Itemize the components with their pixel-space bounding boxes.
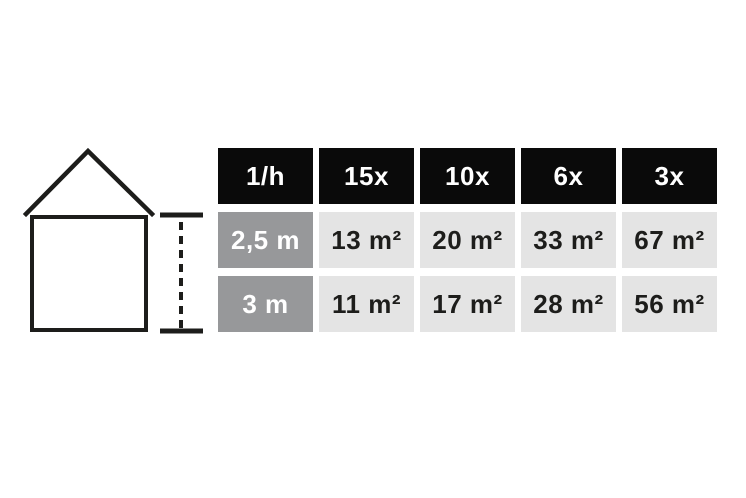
header-cell-3: 6x [521, 148, 616, 204]
header-cell-4: 3x [622, 148, 717, 204]
value-cell-r0-c2: 33 m² [521, 212, 616, 268]
house-icon [26, 151, 152, 330]
value-cell-r1-c2: 28 m² [521, 276, 616, 332]
value-cell-r1-c0: 11 m² [319, 276, 414, 332]
room-height-measure-icon [160, 215, 203, 331]
header-cell-2: 10x [420, 148, 515, 204]
illustration-canvas: 1/h15x10x6x3x2,5 m13 m²20 m²33 m²67 m²3 … [0, 0, 746, 498]
header-cell-0: 1/h [218, 148, 313, 204]
air-change-table: 1/h15x10x6x3x2,5 m13 m²20 m²33 m²67 m²3 … [218, 148, 717, 332]
row-label-cell-0: 2,5 m [218, 212, 313, 268]
row-label-cell-1: 3 m [218, 276, 313, 332]
value-cell-r0-c0: 13 m² [319, 212, 414, 268]
value-cell-r0-c3: 67 m² [622, 212, 717, 268]
value-cell-r1-c3: 56 m² [622, 276, 717, 332]
value-cell-r1-c1: 17 m² [420, 276, 515, 332]
header-cell-1: 15x [319, 148, 414, 204]
value-cell-r0-c1: 20 m² [420, 212, 515, 268]
